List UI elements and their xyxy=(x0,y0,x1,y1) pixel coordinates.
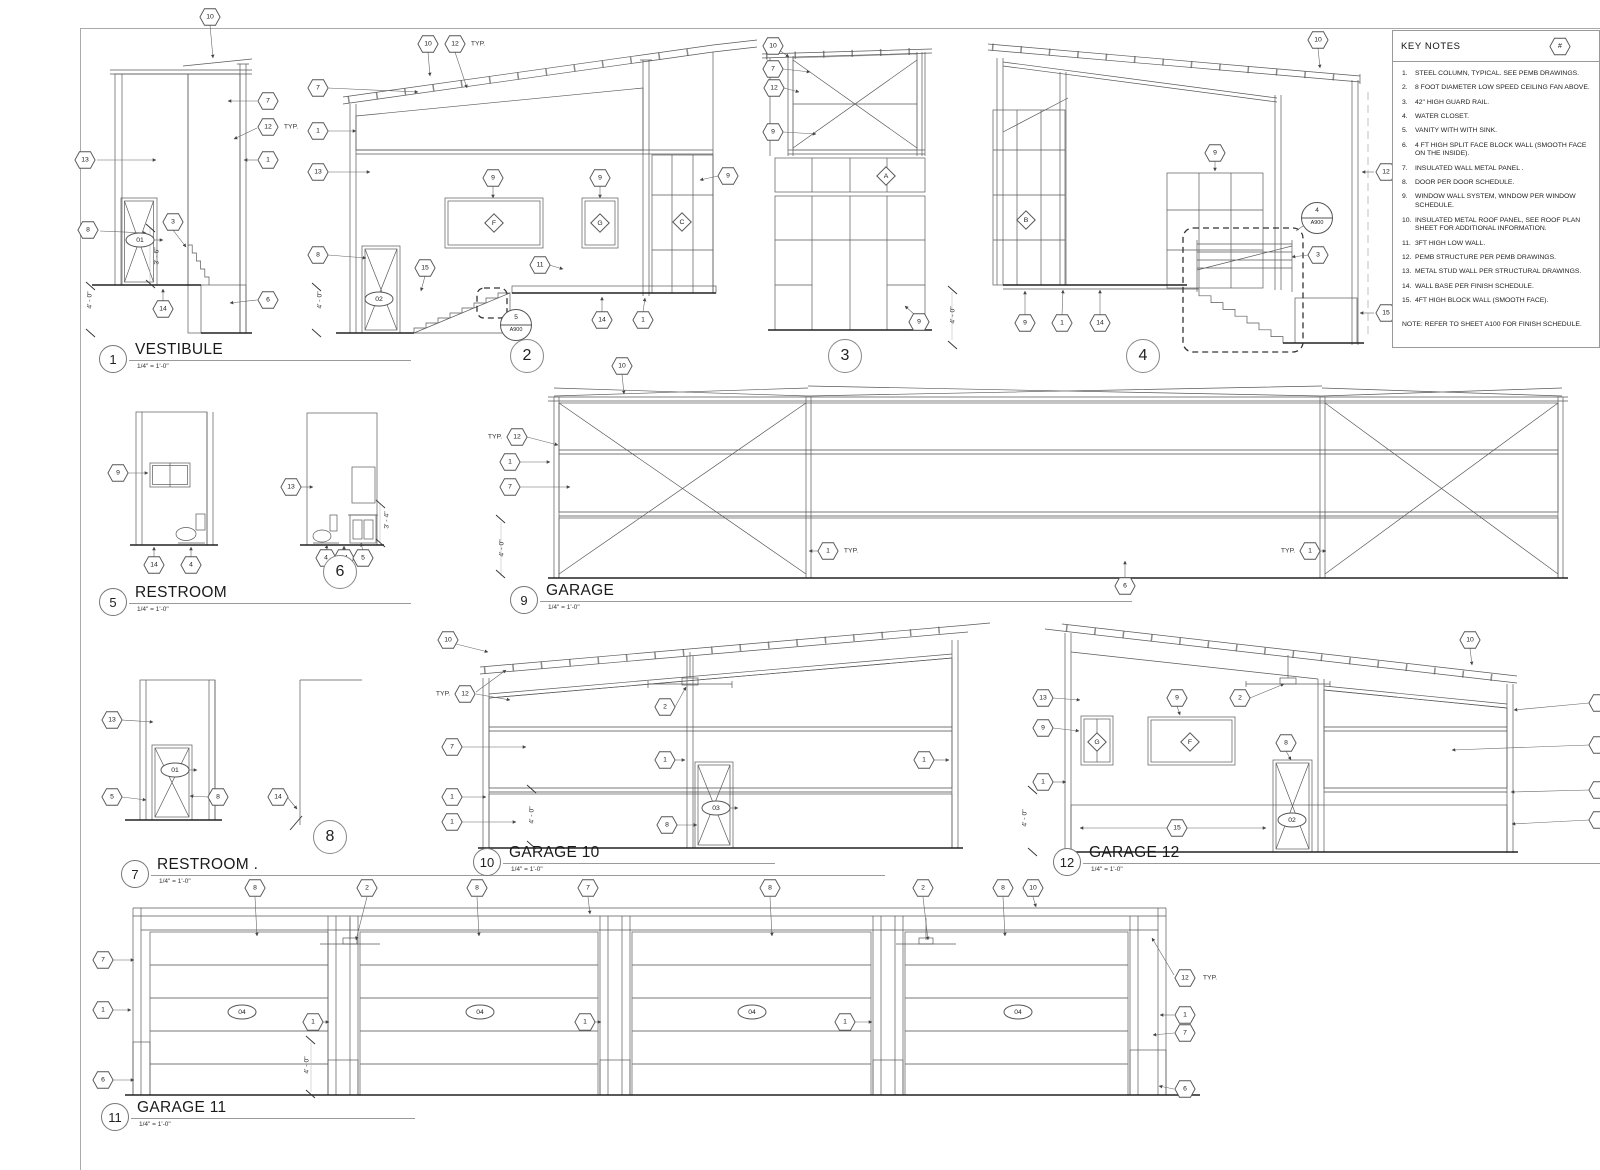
keynote-tag-7: 7 xyxy=(441,738,463,757)
drawing-number-2: 2 xyxy=(510,339,544,373)
door-tag-04: 04 xyxy=(227,1004,257,1020)
door-tag-01: 01 xyxy=(160,762,190,778)
keynote-tag-9: 9 xyxy=(908,313,930,332)
key-note-item: 9.WINDOW WALL SYSTEM, WINDOW PER WINDOW … xyxy=(1402,193,1594,211)
keynote-tag-7: 7 xyxy=(1174,1024,1196,1043)
keynote-tag-15: 15 xyxy=(1166,819,1188,838)
keynote-tag-8: 8 xyxy=(656,816,678,835)
drawing-title-restroom: 5RESTROOM1/4" = 1'-0" xyxy=(99,584,411,620)
keynote-tag-1: 1 xyxy=(1032,773,1054,792)
key-note-item: 13.METAL STUD WALL PER STRUCTURAL DRAWIN… xyxy=(1402,268,1594,277)
key-note-item: 2.8 FOOT DIAMETER LOW SPEED CEILING FAN … xyxy=(1402,84,1594,93)
keynote-tag-15: 15 xyxy=(414,259,436,278)
drawing-number: 12 xyxy=(1053,848,1081,876)
door-tag-04: 04 xyxy=(465,1004,495,1020)
window-tag-F: F xyxy=(1179,731,1201,753)
title-scale: 1/4" = 1'-0" xyxy=(137,363,169,370)
keynote-tag-13: 13 xyxy=(101,711,123,730)
dimension-label: 4' - 0" xyxy=(950,306,957,323)
door-tag-02: 02 xyxy=(364,291,394,307)
keynote-tag-6: 6 xyxy=(1174,1080,1196,1099)
key-note-item: 15.4FT HIGH BLOCK WALL (SMOOTH FACE). xyxy=(1402,297,1594,306)
drawing-title-garage-12: 12GARAGE 121/4" = 1'-0" xyxy=(1053,844,1600,880)
key-note-item: 1.STEEL COLUMN, TYPICAL. SEE PEMB DRAWIN… xyxy=(1402,70,1594,79)
keynote-tag-9: 9 xyxy=(1166,689,1188,708)
door-tag-02: 02 xyxy=(1277,812,1307,828)
dimension-label: 4' - 0" xyxy=(304,1056,311,1073)
drawing-number-4: 4 xyxy=(1126,339,1160,373)
keynote-tag-8: 8 xyxy=(992,879,1014,898)
keynote-tag-1: 1 xyxy=(1051,314,1073,333)
keynote-tag-9: 9 xyxy=(107,464,129,483)
keynote-tag-1: 1 xyxy=(499,453,521,472)
key-note-item: 14.WALL BASE PER FINISH SCHEDULE. xyxy=(1402,283,1594,292)
keynote-tag-5: 5 xyxy=(101,788,123,807)
keynote-tag-7: 7 xyxy=(92,951,114,970)
keynote-tag-14: 14 xyxy=(591,311,613,330)
door-tag-03: 03 xyxy=(701,800,731,816)
keynote-tag-8: 8 xyxy=(207,788,229,807)
window-tag-C: C xyxy=(671,211,693,233)
keynote-tag-12: 12 xyxy=(257,118,279,137)
title-text: RESTROOM . xyxy=(157,856,258,874)
drawing-title-garage-10: 10GARAGE 101/4" = 1'-0" xyxy=(473,844,775,880)
keynote-tag-9: 9 xyxy=(762,123,784,142)
key-note-item: 12.PEMB STRUCTURE PER PEMB DRAWINGS. xyxy=(1402,254,1594,263)
dimension-label: 4' - 0" xyxy=(529,806,536,823)
keynote-tag-1: 1 xyxy=(302,1013,324,1032)
title-underline xyxy=(540,601,1132,602)
keynote-tag-7: 7 xyxy=(307,79,329,98)
title-text: VESTIBULE xyxy=(135,341,223,359)
keynote-tag-12: 12 xyxy=(444,35,466,54)
key-notes-footnote: NOTE: REFER TO SHEET A100 FOR FINISH SCH… xyxy=(1393,311,1599,328)
key-note-item: 6.4 FT HIGH SPLIT FACE BLOCK WALL (SMOOT… xyxy=(1402,142,1594,160)
keynote-tag-8: 8 xyxy=(77,221,99,240)
keynote-tag-4: 4 xyxy=(180,556,202,575)
keynote-tag-12: 12 xyxy=(1174,969,1196,988)
drawing-number: 7 xyxy=(121,860,149,888)
keynote-tag-7: 7 xyxy=(257,92,279,111)
drawing-title-garage: 9GARAGE1/4" = 1'-0" xyxy=(510,582,1132,618)
title-scale: 1/4" = 1'-0" xyxy=(1091,866,1123,873)
key-note-item: 11.3FT HIGH LOW WALL. xyxy=(1402,240,1594,249)
keynote-tag-9: 9 xyxy=(482,169,504,188)
title-underline xyxy=(131,1118,415,1119)
key-notes-header: KEY NOTES # xyxy=(1393,31,1599,62)
drawing-number: 11 xyxy=(101,1103,129,1131)
keynote-tag-cutoff xyxy=(1588,811,1600,830)
keynote-tag-2: 2 xyxy=(912,879,934,898)
dimension-label: 3' - 6" xyxy=(154,247,161,264)
drawing-number: 10 xyxy=(473,848,501,876)
title-underline xyxy=(129,360,411,361)
dimension-label: 4' - 0" xyxy=(87,291,94,308)
keynote-tag-cutoff xyxy=(1588,694,1600,713)
window-tag-F: F xyxy=(483,212,505,234)
key-notes-list: 1.STEEL COLUMN, TYPICAL. SEE PEMB DRAWIN… xyxy=(1393,62,1599,306)
keynote-tag-14: 14 xyxy=(143,556,165,575)
title-scale: 1/4" = 1'-0" xyxy=(548,604,580,611)
typ-label: TYP. xyxy=(436,691,450,698)
keynote-tag-10: 10 xyxy=(417,35,439,54)
keynote-tag-7: 7 xyxy=(499,478,521,497)
detail-callout-4-A900: 4A900 xyxy=(1300,201,1334,235)
keynote-tag-2: 2 xyxy=(654,698,676,717)
keynote-tag-1: 1 xyxy=(654,751,676,770)
key-note-item: 4.WATER CLOSET. xyxy=(1402,113,1594,122)
key-note-item: 5.VANITY WITH WITH SINK. xyxy=(1402,127,1594,136)
dimension-label: 4' - 0" xyxy=(1022,809,1029,826)
title-scale: 1/4" = 1'-0" xyxy=(511,866,543,873)
keynote-tag-9: 9 xyxy=(1032,719,1054,738)
typ-label: TYP. xyxy=(471,41,485,48)
typ-label: TYP. xyxy=(488,434,502,441)
title-text: RESTROOM xyxy=(135,584,227,602)
key-note-item: 7.INSULATED WALL METAL PANEL . xyxy=(1402,165,1594,174)
window-tag-B: B xyxy=(1015,209,1037,231)
keynote-tag-1: 1 xyxy=(257,151,279,170)
keynote-tag-9: 9 xyxy=(1014,314,1036,333)
dimension-label: 4' - 0" xyxy=(499,539,506,556)
title-text: GARAGE 11 xyxy=(137,1099,226,1117)
drawing-title-vestibule: 1VESTIBULE1/4" = 1'-0" xyxy=(99,341,411,377)
keynote-tag-1: 1 xyxy=(1299,542,1321,561)
title-underline xyxy=(503,863,775,864)
keynote-tag-1: 1 xyxy=(307,122,329,141)
detail-callout-5-A900: 5A900 xyxy=(499,308,533,342)
keynote-tag-1: 1 xyxy=(632,311,654,330)
annotation-overlay: 10712TYP.11380131464' - 0"3' - 6"1012TYP… xyxy=(0,0,1600,1170)
keynote-tag-1: 1 xyxy=(574,1013,596,1032)
keynote-tag-10: 10 xyxy=(611,357,633,376)
dimension-label: 4' - 0" xyxy=(317,291,324,308)
keynote-tag-7: 7 xyxy=(762,60,784,79)
door-tag-01: 01 xyxy=(125,232,155,248)
keynote-tag-6: 6 xyxy=(92,1071,114,1090)
keynote-tag-10: 10 xyxy=(1307,31,1329,50)
keynote-tag-2: 2 xyxy=(1229,689,1251,708)
keynote-tag-13: 13 xyxy=(74,151,96,170)
keynote-tag-1: 1 xyxy=(441,813,463,832)
key-notes-panel: KEY NOTES # 1.STEEL COLUMN, TYPICAL. SEE… xyxy=(1392,30,1600,348)
title-scale: 1/4" = 1'-0" xyxy=(139,1121,171,1128)
typ-label: TYP. xyxy=(1281,548,1295,555)
keynote-tag-10: 10 xyxy=(1459,631,1481,650)
drawing-sheet: 10712TYP.11380131464' - 0"3' - 6"1012TYP… xyxy=(0,0,1600,1170)
drawing-title-garage-11: 11GARAGE 111/4" = 1'-0" xyxy=(101,1099,415,1135)
title-text: GARAGE 12 xyxy=(1089,844,1180,862)
keynote-ref-hex-icon: # xyxy=(1549,37,1571,56)
drawing-number-3: 3 xyxy=(828,339,862,373)
keynote-tag-1: 1 xyxy=(834,1013,856,1032)
keynote-tag-1: 1 xyxy=(913,751,935,770)
keynote-tag-10: 10 xyxy=(437,631,459,650)
keynote-tag-1: 1 xyxy=(441,788,463,807)
keynote-tag-cutoff xyxy=(1588,736,1600,755)
keynote-tag-13: 13 xyxy=(307,163,329,182)
drawing-number-6: 6 xyxy=(323,555,357,589)
keynote-tag-1: 1 xyxy=(92,1001,114,1020)
window-tag-G: G xyxy=(1086,731,1108,753)
keynote-tag-12: 12 xyxy=(454,685,476,704)
title-underline xyxy=(129,603,411,604)
key-note-item: 8.DOOR PER DOOR SCHEDULE. xyxy=(1402,179,1594,188)
door-tag-04: 04 xyxy=(1003,1004,1033,1020)
typ-label: TYP. xyxy=(1203,975,1217,982)
keynote-tag-8: 8 xyxy=(307,246,329,265)
window-tag-G: G xyxy=(589,212,611,234)
keynote-tag-12: 12 xyxy=(506,428,528,447)
title-scale: 1/4" = 1'-0" xyxy=(137,606,169,613)
keynote-tag-14: 14 xyxy=(152,300,174,319)
drawing-number: 1 xyxy=(99,345,127,373)
keynote-tag-3: 3 xyxy=(1307,246,1329,265)
drawing-number: 5 xyxy=(99,588,127,616)
drawing-number: 9 xyxy=(510,586,538,614)
keynote-tag-10: 10 xyxy=(1022,879,1044,898)
keynote-tag-9: 9 xyxy=(717,167,739,186)
keynote-tag-9: 9 xyxy=(1204,144,1226,163)
title-scale: 1/4" = 1'-0" xyxy=(159,878,191,885)
typ-label: TYP. xyxy=(284,124,298,131)
drawing-number-8: 8 xyxy=(313,820,347,854)
window-tag-A: A xyxy=(875,165,897,187)
door-tag-04: 04 xyxy=(737,1004,767,1020)
keynote-tag-1: 1 xyxy=(1174,1006,1196,1025)
keynote-tag-14: 14 xyxy=(1089,314,1111,333)
title-text: GARAGE 10 xyxy=(509,844,600,862)
keynote-tag-11: 11 xyxy=(529,256,551,275)
title-text: GARAGE xyxy=(546,582,614,600)
keynote-tag-6: 6 xyxy=(257,291,279,310)
keynote-tag-10: 10 xyxy=(199,8,221,27)
keynote-tag-13: 13 xyxy=(1032,689,1054,708)
keynote-tag-cutoff xyxy=(1588,781,1600,800)
dimension-label: 3' - 4" xyxy=(384,511,391,528)
keynote-tag-1: 1 xyxy=(817,542,839,561)
keynote-tag-10: 10 xyxy=(762,37,784,56)
key-note-item: 3.42" HIGH GUARD RAIL. xyxy=(1402,99,1594,108)
keynote-tag-13: 13 xyxy=(280,478,302,497)
keynote-tag-9: 9 xyxy=(589,169,611,188)
key-note-item: 10.INSULATED METAL ROOF PANEL, SEE ROOF … xyxy=(1402,217,1594,235)
title-underline xyxy=(1083,863,1600,864)
keynote-tag-14: 14 xyxy=(267,788,289,807)
key-notes-title: KEY NOTES xyxy=(1401,41,1461,52)
typ-label: TYP. xyxy=(844,548,858,555)
keynote-tag-3: 3 xyxy=(162,213,184,232)
keynote-tag-8: 8 xyxy=(1275,734,1297,753)
keynote-tag-12: 12 xyxy=(763,79,785,98)
